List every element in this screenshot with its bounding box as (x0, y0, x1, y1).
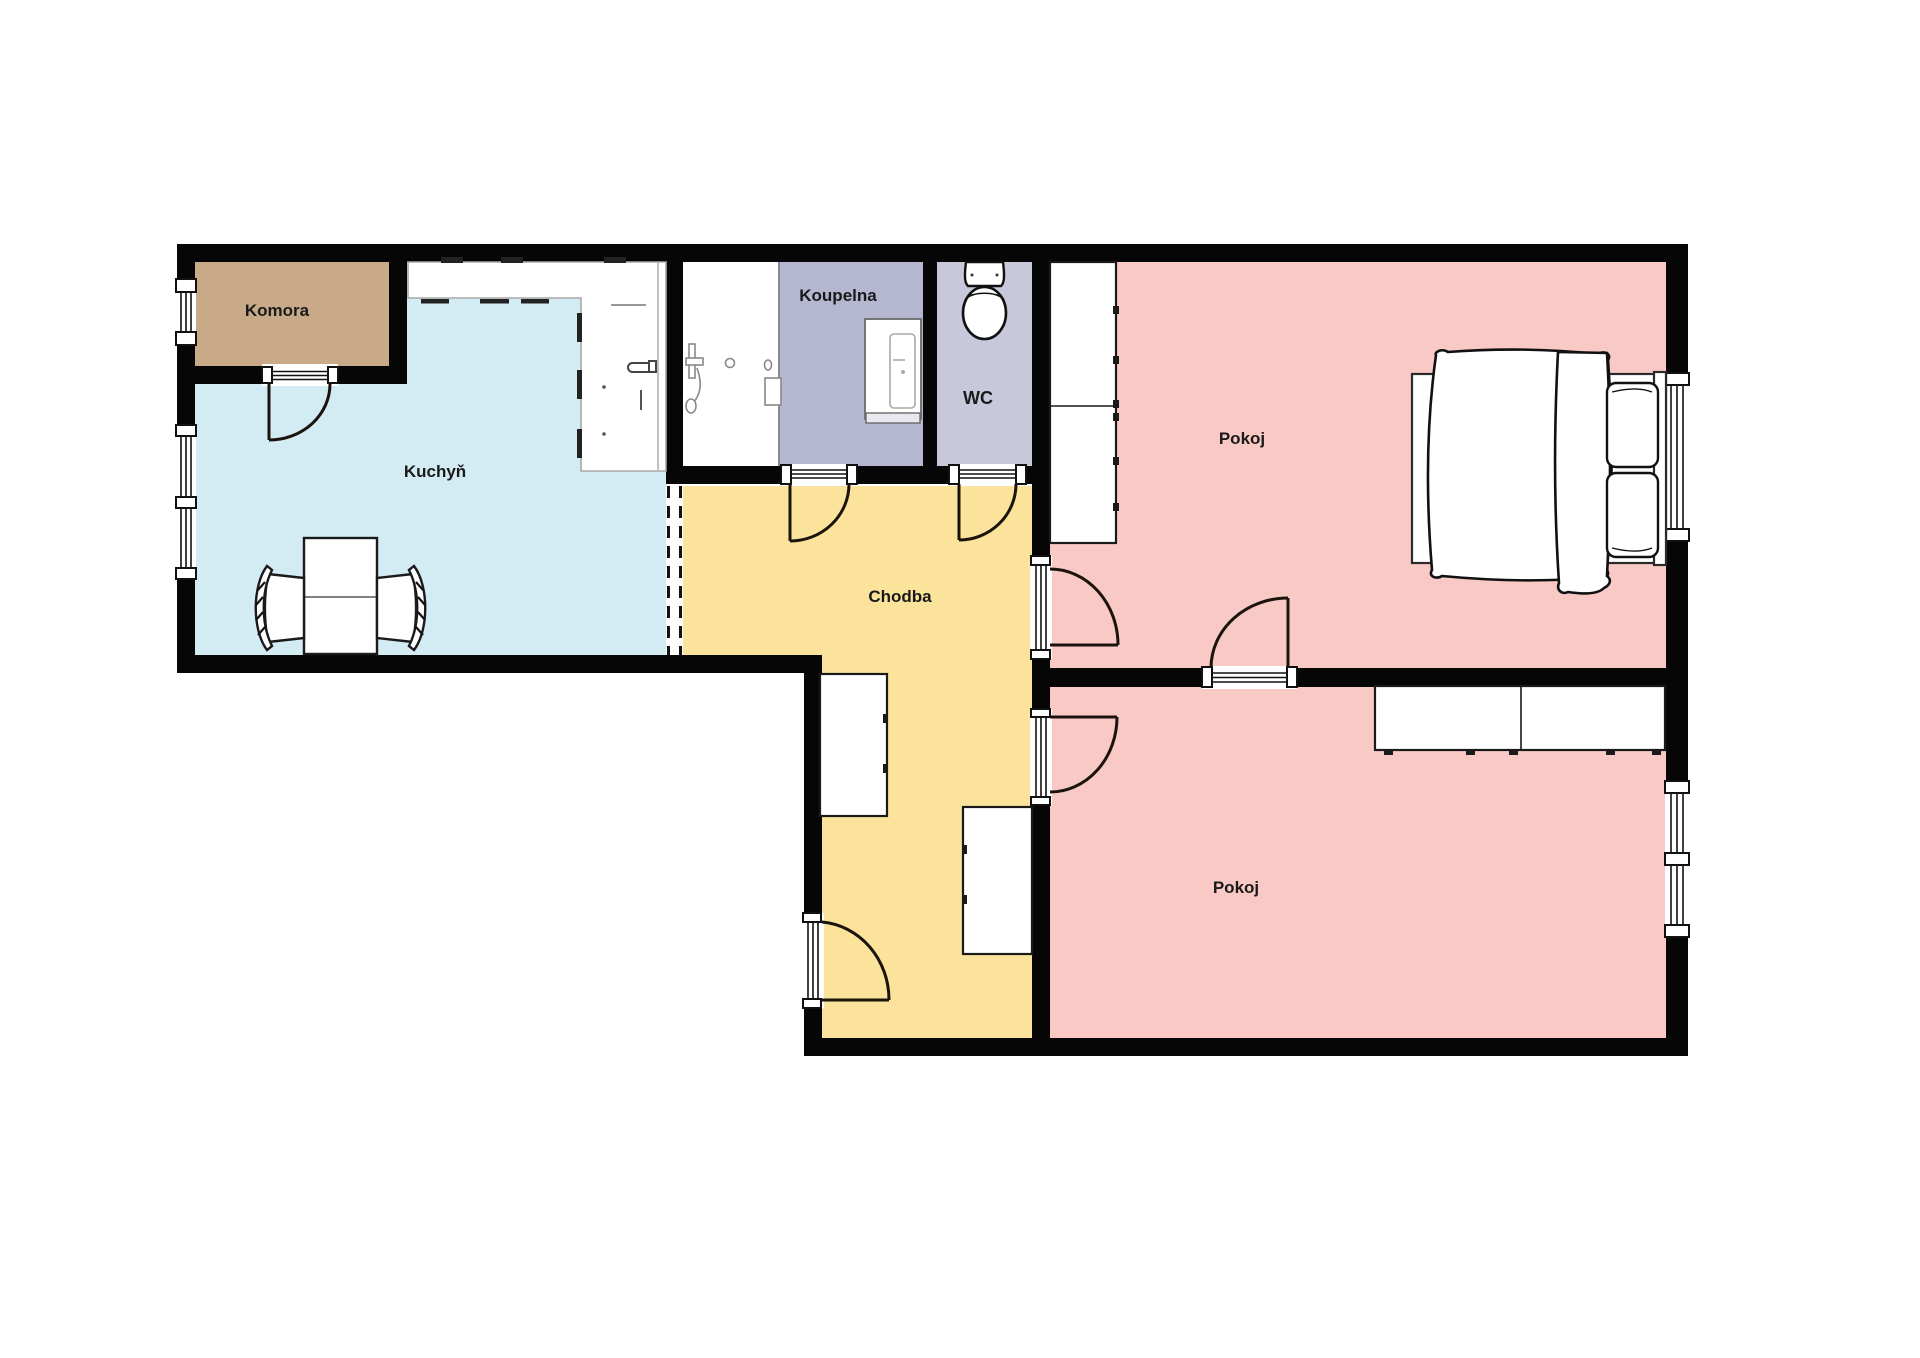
svg-text:WC: WC (963, 388, 993, 408)
svg-text:Koupelna: Koupelna (799, 286, 877, 305)
svg-text:Pokoj: Pokoj (1219, 429, 1265, 448)
svg-text:Pokoj: Pokoj (1213, 878, 1259, 897)
svg-text:Kuchyň: Kuchyň (404, 462, 466, 481)
svg-text:Chodba: Chodba (868, 587, 932, 606)
svg-text:Komora: Komora (245, 301, 310, 320)
